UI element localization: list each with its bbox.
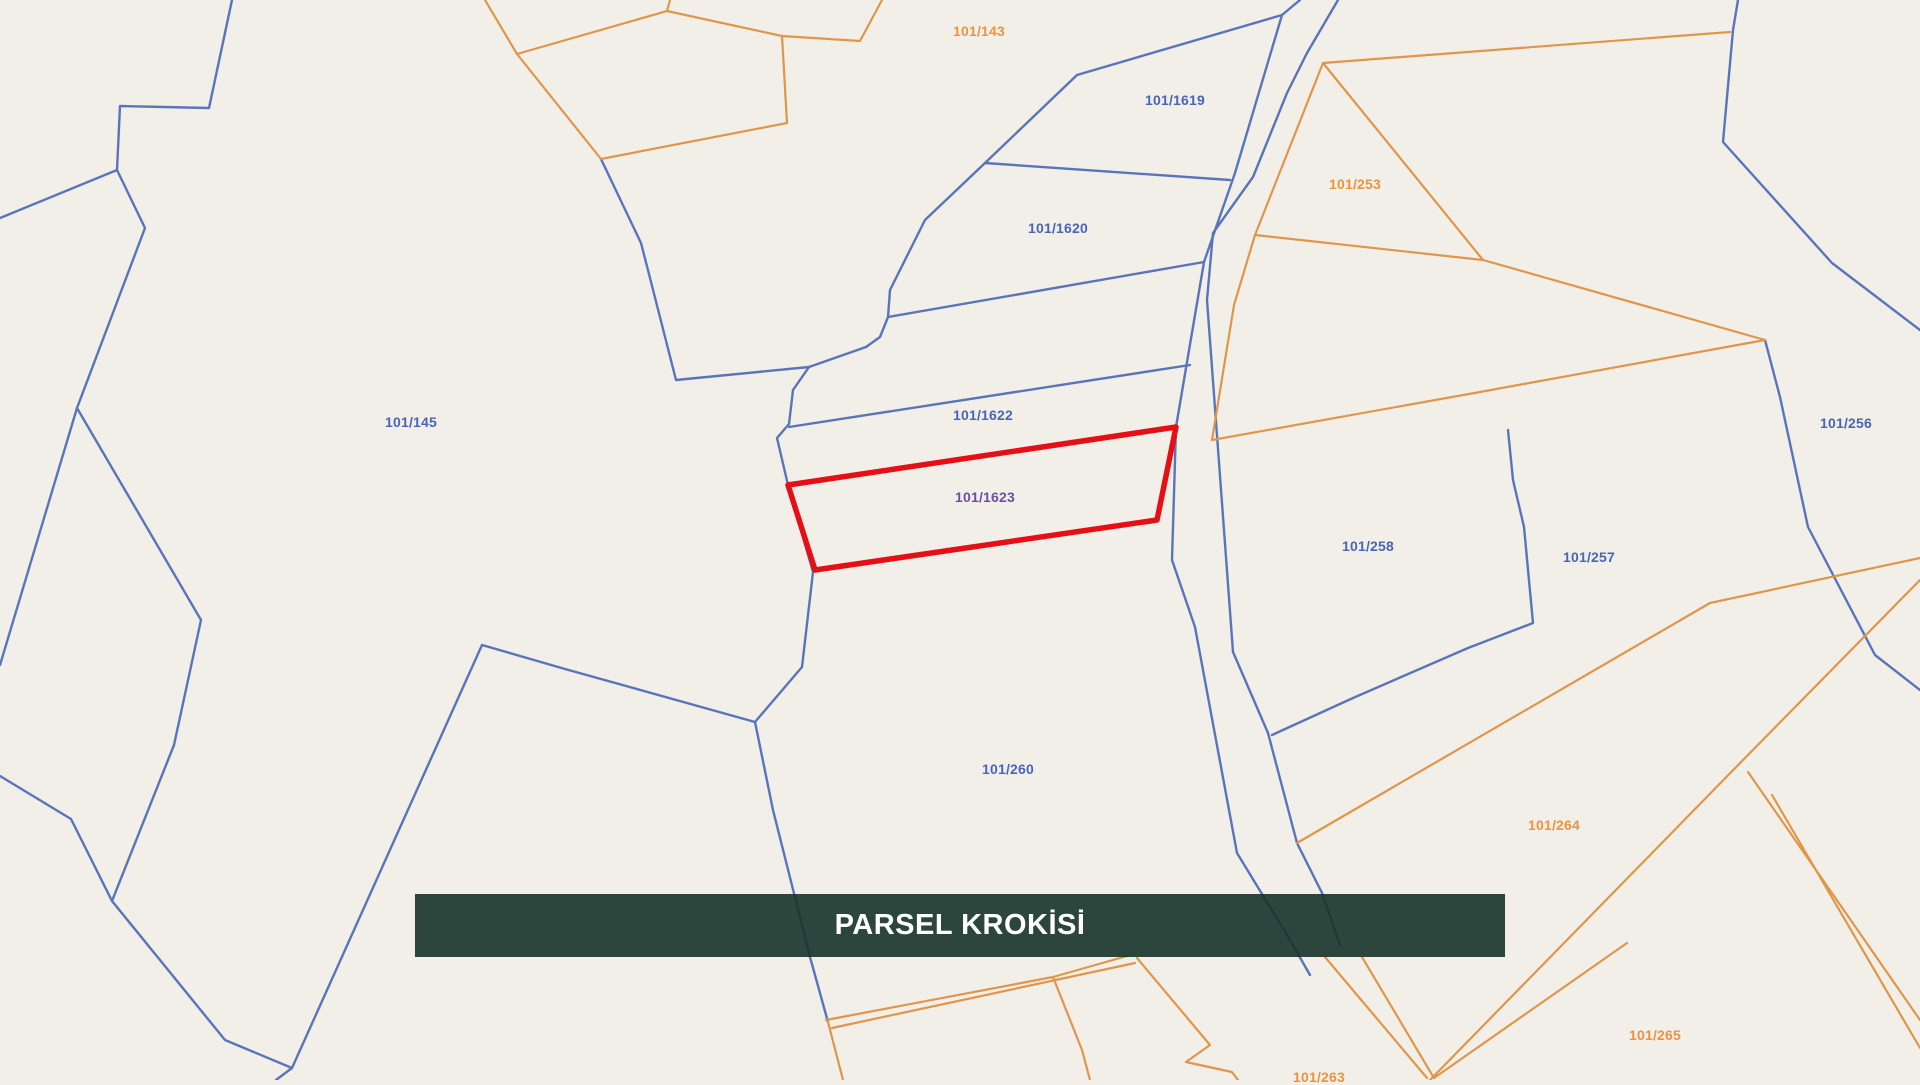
parcel-label-101-143: 101/143 [953, 23, 1005, 39]
parcel-label-101-260: 101/260 [982, 761, 1034, 777]
parcel-sketch-banner: PARSEL KROKİSİ [415, 894, 1505, 957]
parcel-map: 101/143101/1619101/253101/1620101/162210… [0, 0, 1920, 1080]
parcel-label-101-1622: 101/1622 [953, 407, 1013, 423]
parcel-label-101-265: 101/265 [1629, 1027, 1681, 1043]
parcel-label-101-253: 101/253 [1329, 176, 1381, 192]
parcel-label-101-264: 101/264 [1528, 817, 1580, 833]
parcel-label-101-257: 101/257 [1563, 549, 1615, 565]
parcel-label-101-1619: 101/1619 [1145, 92, 1205, 108]
parcel-label-101-258: 101/258 [1342, 538, 1394, 554]
parcel-label-101-145: 101/145 [385, 414, 437, 430]
banner-title: PARSEL KROKİSİ [835, 909, 1086, 942]
parcel-label-101-1620: 101/1620 [1028, 220, 1088, 236]
parcel-label-101-263: 101/263 [1293, 1069, 1345, 1085]
parcel-label-101-1623: 101/1623 [955, 489, 1015, 505]
parcel-label-101-256: 101/256 [1820, 415, 1872, 431]
